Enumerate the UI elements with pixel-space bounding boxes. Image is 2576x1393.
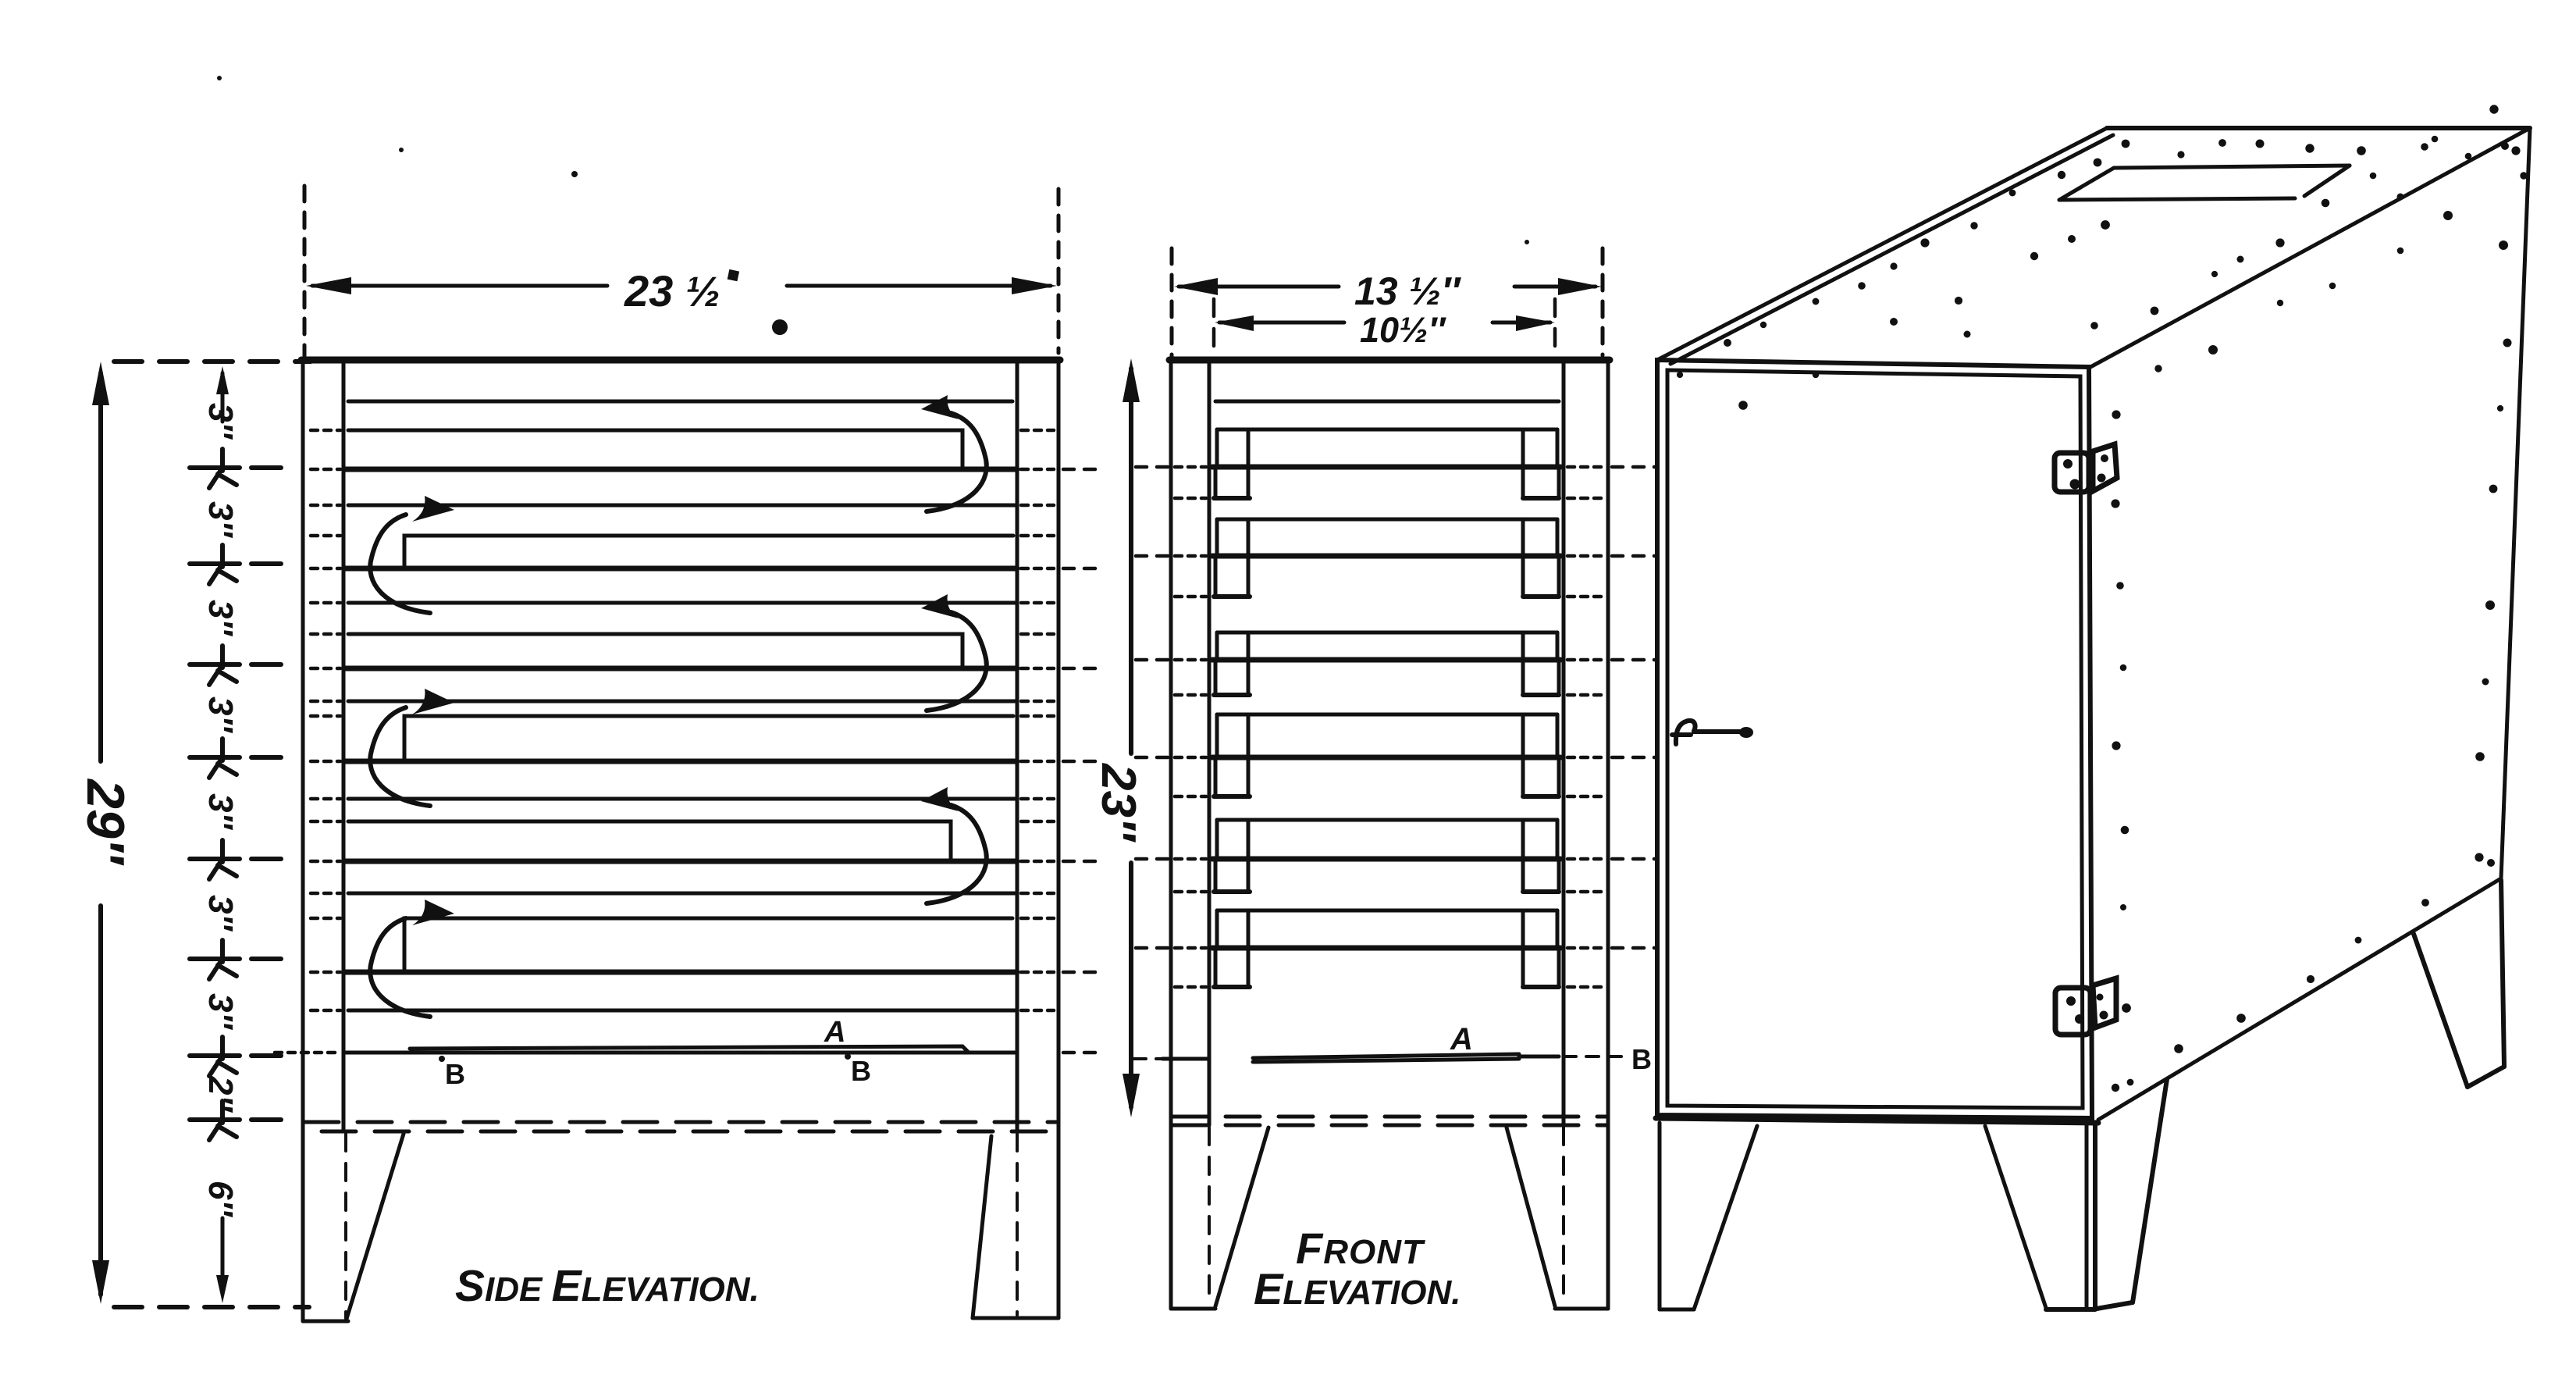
svg-text:23 ½: 23 ½ (624, 266, 720, 315)
svg-text:3″: 3″ (201, 993, 240, 1030)
svg-text:B: B (851, 1055, 871, 1087)
svg-text:13 ½″: 13 ½″ (1354, 269, 1461, 313)
svg-text:29″: 29″ (76, 778, 135, 866)
svg-text:3″: 3″ (201, 895, 240, 932)
svg-text:2″: 2″ (201, 1075, 240, 1113)
svg-text:3″: 3″ (201, 696, 240, 733)
svg-text:3″: 3″ (201, 600, 240, 636)
svg-text:3″: 3″ (201, 793, 240, 830)
svg-text:A: A (824, 1016, 845, 1049)
svg-text:B: B (445, 1058, 465, 1090)
svg-text:3″: 3″ (201, 501, 240, 538)
svg-text:6″: 6″ (201, 1181, 240, 1217)
svg-text:3″: 3″ (201, 403, 240, 440)
svg-text:A: A (1450, 1022, 1473, 1056)
svg-text:10½″: 10½″ (1360, 310, 1447, 350)
svg-text:23″: 23″ (1091, 763, 1145, 843)
svg-text:B: B (1631, 1043, 1652, 1075)
